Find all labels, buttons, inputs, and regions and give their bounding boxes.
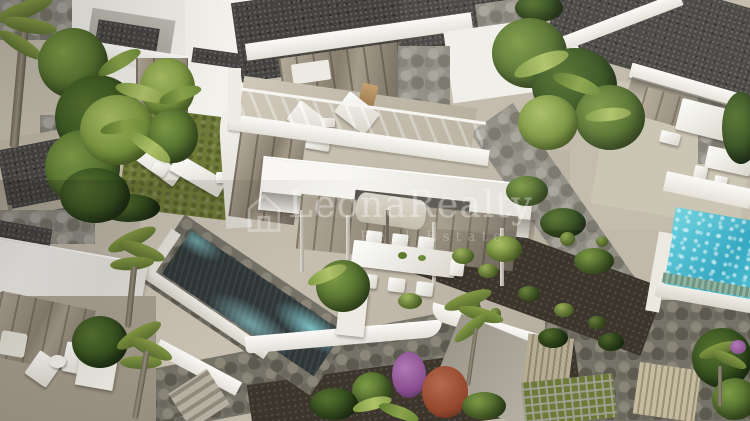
table-plant [418, 255, 426, 261]
agave [518, 286, 540, 301]
shrub [310, 388, 358, 420]
barrel-cactus [560, 232, 575, 246]
villa-render-scene: LeonaRealty Real Estate [0, 0, 750, 421]
shrub [574, 248, 614, 274]
table-plant [398, 252, 407, 259]
shrub [538, 328, 568, 348]
palm-trunk [718, 366, 722, 406]
lower-terrace-round-table [49, 355, 66, 368]
banana-mass-right [518, 95, 578, 150]
foliage-mass [60, 168, 130, 223]
shrub [486, 236, 522, 262]
purple-flowers-small [730, 340, 746, 354]
balcony-corner-edge [228, 68, 241, 122]
agave [478, 264, 498, 278]
agave [398, 293, 422, 309]
roof-support-post [300, 210, 304, 272]
agave [452, 248, 474, 264]
purple-flower-shrub [392, 352, 426, 398]
shrub [598, 333, 624, 351]
shrub [506, 176, 548, 206]
timber-gate [633, 362, 702, 421]
dining-chair [387, 277, 406, 293]
rust-flower-shrub [422, 366, 468, 418]
agave [554, 303, 574, 317]
grass-paver-driveway [521, 373, 617, 421]
lower-terrace-sofa [0, 330, 28, 358]
barrel-cactus [596, 236, 608, 247]
shrub [462, 392, 506, 420]
agave [588, 316, 606, 329]
